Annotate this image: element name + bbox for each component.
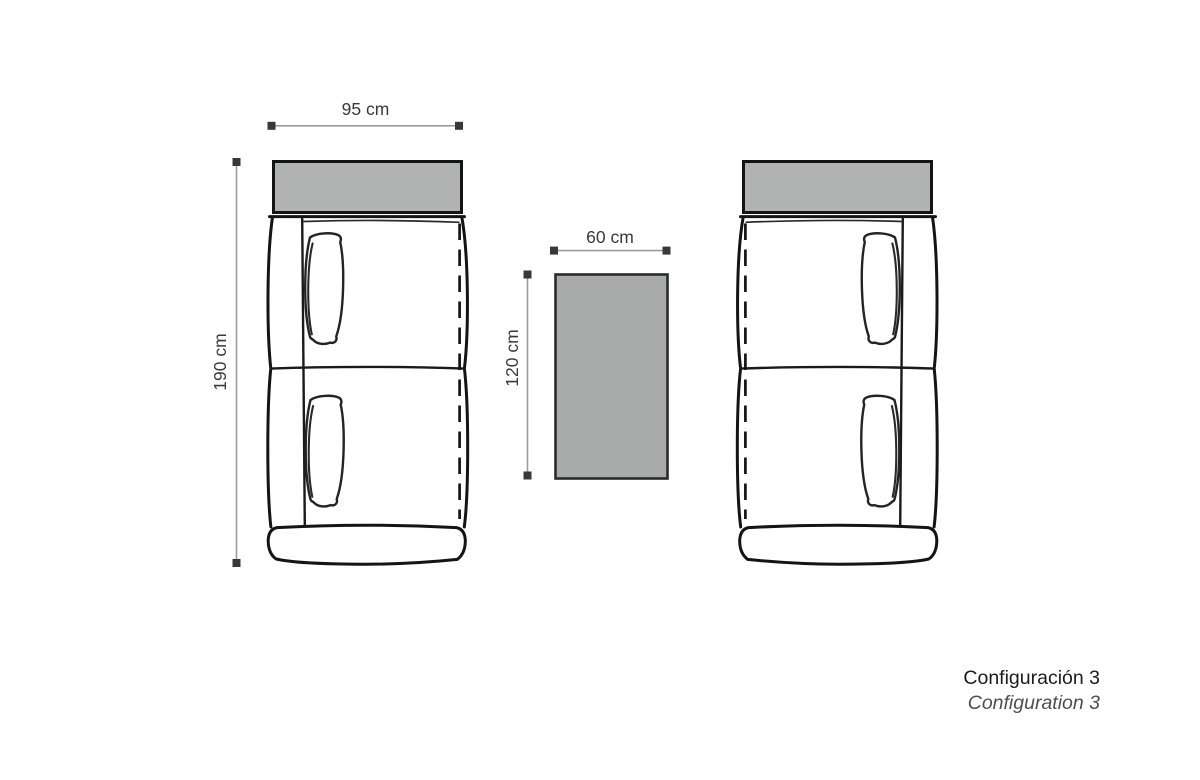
dimension-endpoint xyxy=(524,472,532,480)
dimension-endpoint xyxy=(233,158,241,166)
caption: Configuración 3 Configuration 3 xyxy=(963,667,1100,714)
coffee-table xyxy=(556,275,668,479)
configuration-diagram: 95 cm 190 cm 60 cm 120 cm Configuración … xyxy=(0,0,1200,780)
sofa-right-module xyxy=(737,162,937,565)
table-depth-label: 120 cm xyxy=(502,329,522,386)
sofa-depth-label: 190 cm xyxy=(210,333,230,390)
sofa-depth-dimension: 190 cm xyxy=(210,158,241,567)
caption-secondary: Configuration 3 xyxy=(968,692,1100,714)
dimension-endpoint xyxy=(524,271,532,279)
table-width-label: 60 cm xyxy=(586,227,634,247)
dimension-endpoint xyxy=(550,247,558,255)
caption-primary: Configuración 3 xyxy=(963,667,1100,689)
sofa-width-dimension: 95 cm xyxy=(268,99,464,130)
dimension-endpoint xyxy=(455,122,463,130)
dimension-endpoint xyxy=(663,247,671,255)
dimension-endpoint xyxy=(268,122,276,130)
dimension-endpoint xyxy=(233,559,241,567)
floorplan-canvas: 95 cm 190 cm 60 cm 120 cm Configuración … xyxy=(0,0,1200,780)
sofa-left-module xyxy=(268,162,468,565)
sofa-width-label: 95 cm xyxy=(342,99,390,119)
table-width-dimension: 60 cm xyxy=(550,227,671,255)
table-depth-dimension: 120 cm xyxy=(502,271,532,480)
